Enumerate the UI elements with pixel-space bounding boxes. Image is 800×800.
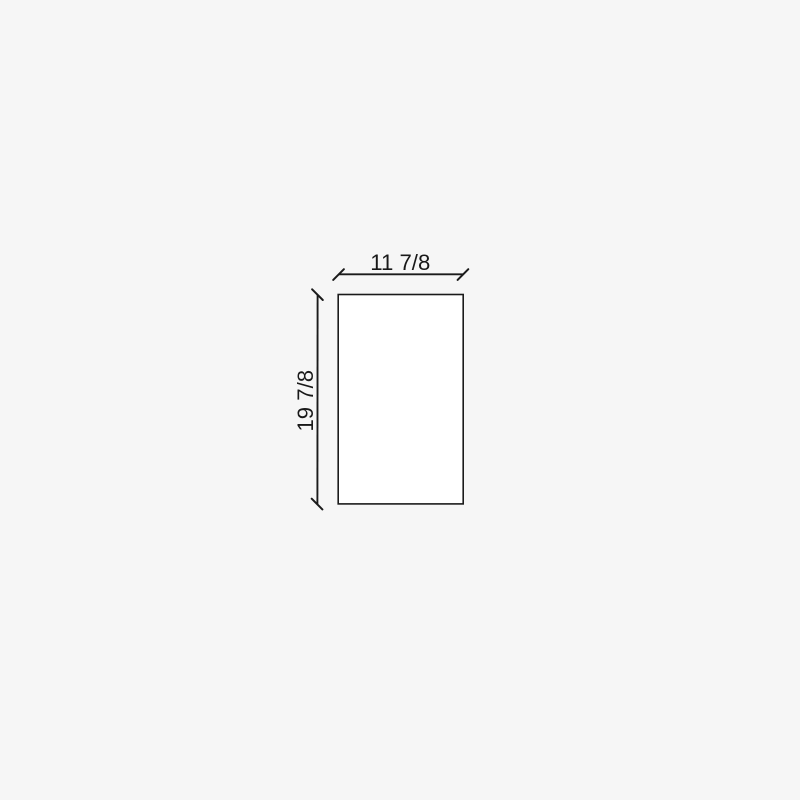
svg-text:19 7/8: 19 7/8: [293, 370, 318, 432]
svg-text:11 7/8: 11 7/8: [370, 250, 430, 275]
